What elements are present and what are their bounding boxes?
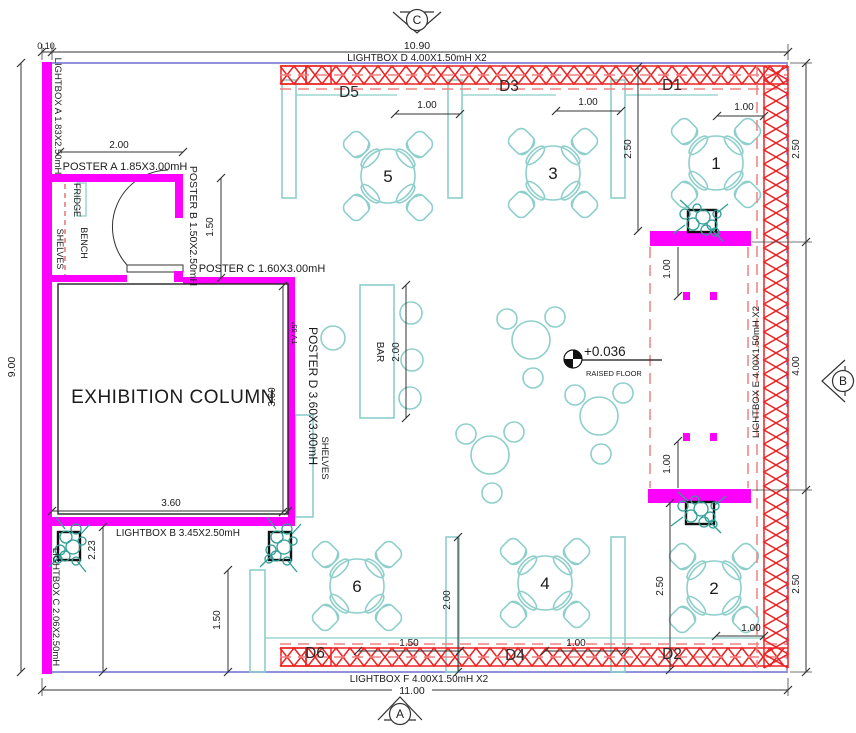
poster-c-label: POSTER C 1.60X3.00mH	[199, 263, 326, 275]
lightbox-f-label: LIGHTBOX F 4.00X1.50mH X2	[350, 674, 489, 685]
door-d3-label: D3	[499, 78, 519, 95]
section-marker-c: C	[393, 10, 441, 34]
dim-gap-d6: 1.50	[399, 638, 419, 649]
level-value: +0.036	[584, 344, 626, 359]
table-5-number: 5	[383, 167, 392, 186]
poster-d-wall	[288, 284, 295, 517]
marker-a-letter: A	[396, 707, 404, 721]
section-marker-a: A	[378, 697, 422, 725]
table-numbers: 5 3 1 6 4 2	[352, 154, 720, 598]
dim-partition-left: 1.50	[212, 610, 223, 630]
lightbox-b-label: LIGHTBOX B 3.45X2.50mH	[116, 528, 240, 539]
dim-right-bottom: 2.50	[791, 574, 802, 594]
shelves-storage-label: SHELVES	[55, 229, 65, 270]
marker-b-letter: B	[839, 374, 847, 388]
truss-bottom	[280, 644, 788, 666]
door-d1-label: D1	[662, 77, 682, 94]
dim-corridor-top: 1.00	[662, 259, 673, 279]
fridge-label: FRIDGE	[72, 183, 82, 217]
cocktail-table	[456, 422, 524, 503]
door-d5-label: D5	[339, 84, 359, 101]
dim-gap-t2: 1.00	[741, 623, 761, 634]
dim-top-offset: 0.10	[37, 41, 55, 51]
poster-b-wall	[175, 174, 183, 218]
dim-poster-a-width: 2.00	[109, 140, 129, 151]
dim-gap-t1: 1.00	[734, 102, 754, 113]
dim-gap-t3: 1.00	[578, 97, 598, 108]
tv-label: TV 65''	[290, 321, 299, 344]
dim-right-top: 2.50	[791, 139, 802, 159]
level-label: RAISED FLOOR	[586, 369, 642, 378]
dim-partition-mid: 2.00	[442, 590, 453, 610]
lightbox-e-label: LIGHTBOX E 4.00X1.50mH X2	[751, 306, 762, 438]
raised-floor-level: +0.036 RAISED FLOOR	[564, 344, 662, 378]
poster-d-label: POSTER D 3.60X3.00mH	[306, 327, 320, 465]
dim-corridor-bottom: 1.00	[662, 454, 673, 474]
door-d6-label: D6	[305, 645, 325, 662]
marker-c-letter: C	[413, 13, 422, 27]
dim-gap-d4: 1.00	[566, 638, 586, 649]
table-1-number: 1	[711, 154, 720, 173]
stool	[321, 326, 345, 350]
bench-label: BENCH	[79, 227, 89, 259]
dining-tables	[310, 116, 764, 636]
dim-inner-right-bottom: 2.50	[655, 576, 666, 596]
dim-gap-t5: 1.00	[417, 100, 437, 111]
section-marker-b: B	[822, 360, 854, 402]
bar-stool	[399, 387, 421, 409]
bar-stool	[400, 302, 422, 324]
dim-bottom-width: 11.00	[399, 685, 425, 697]
dim-column-width: 3.60	[161, 498, 181, 509]
exhibition-column: EXHIBITION COLUMN	[58, 284, 288, 514]
storage-room: FRIDGE BENCH SHELVES	[55, 183, 89, 277]
table-3-number: 3	[548, 164, 557, 183]
poster-a-label: POSTER A 1.85X3.00mH	[63, 161, 188, 173]
dim-left-height: 9.00	[6, 357, 18, 378]
table-2-number: 2	[709, 579, 718, 598]
door-d4-label: D4	[505, 647, 525, 664]
door-d2-label: D2	[662, 646, 682, 663]
dim-column-height: 3.60	[267, 387, 278, 407]
bar-label: BAR	[374, 342, 385, 363]
dim-poster-b-height: 1.50	[205, 217, 216, 237]
dim-lightbox-c-height: 2.23	[87, 540, 98, 560]
cocktail-table	[497, 307, 565, 388]
table-6-number: 6	[352, 577, 361, 596]
dim-right-mid: 4.00	[791, 356, 802, 376]
table-4-number: 4	[540, 574, 549, 593]
floor-plan-canvas: FRIDGE BENCH SHELVES BAR SHELVES 5 3 1 6…	[0, 0, 856, 733]
lightbox-b-wall	[42, 517, 295, 526]
lightbox-c-label: LIGHTBOX C 2.06X2.50mH	[50, 548, 61, 666]
lightbox-a-label: LIGHTBOX A 1.83X2.50mH	[52, 58, 63, 175]
poster-a-wall	[52, 174, 183, 182]
cocktail-table	[565, 383, 633, 464]
dim-bar-length: 2.00	[391, 342, 402, 362]
dim-inner-right-top: 2.50	[623, 139, 634, 159]
dim-top-width: 10.90	[404, 40, 430, 52]
storage-door	[112, 170, 183, 272]
section-markers: C B A	[378, 10, 854, 725]
lightbox-d-label: LIGHTBOX D 4.00X1.50mH X2	[347, 53, 487, 64]
bar-stool	[401, 349, 423, 371]
poster-b-label: POSTER B 1.50X2.50mH	[187, 166, 199, 286]
exhibition-column-label: EXHIBITION COLUMN	[71, 387, 275, 408]
